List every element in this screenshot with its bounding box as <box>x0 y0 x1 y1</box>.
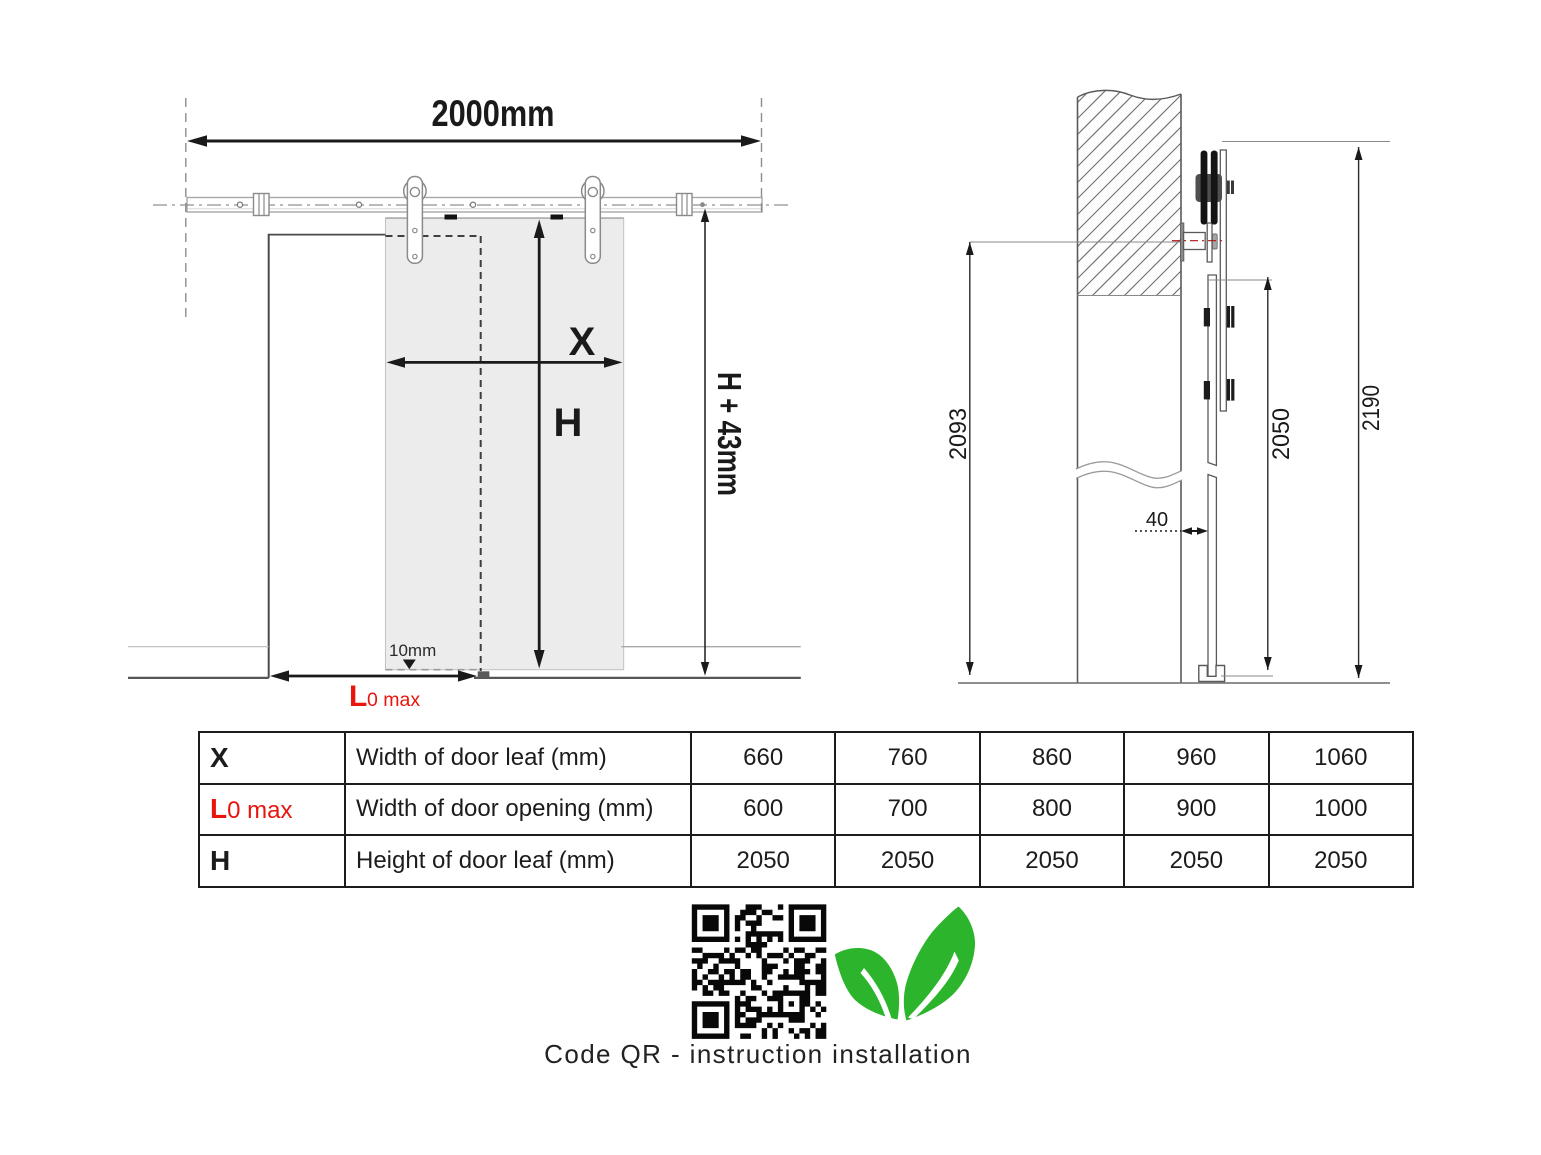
svg-text:2050: 2050 <box>1268 408 1295 460</box>
svg-text:40: 40 <box>1146 509 1168 531</box>
svg-text:10mm: 10mm <box>389 641 436 660</box>
svg-text:2000mm: 2000mm <box>432 93 555 134</box>
svg-text:2190: 2190 <box>1358 385 1385 431</box>
svg-text:H: H <box>554 401 583 445</box>
svg-text:0 max: 0 max <box>367 689 420 711</box>
svg-text:2093: 2093 <box>945 408 972 460</box>
svg-text:X: X <box>569 320 596 364</box>
svg-text:L: L <box>349 680 367 713</box>
svg-text:H + 43mm: H + 43mm <box>711 372 748 496</box>
